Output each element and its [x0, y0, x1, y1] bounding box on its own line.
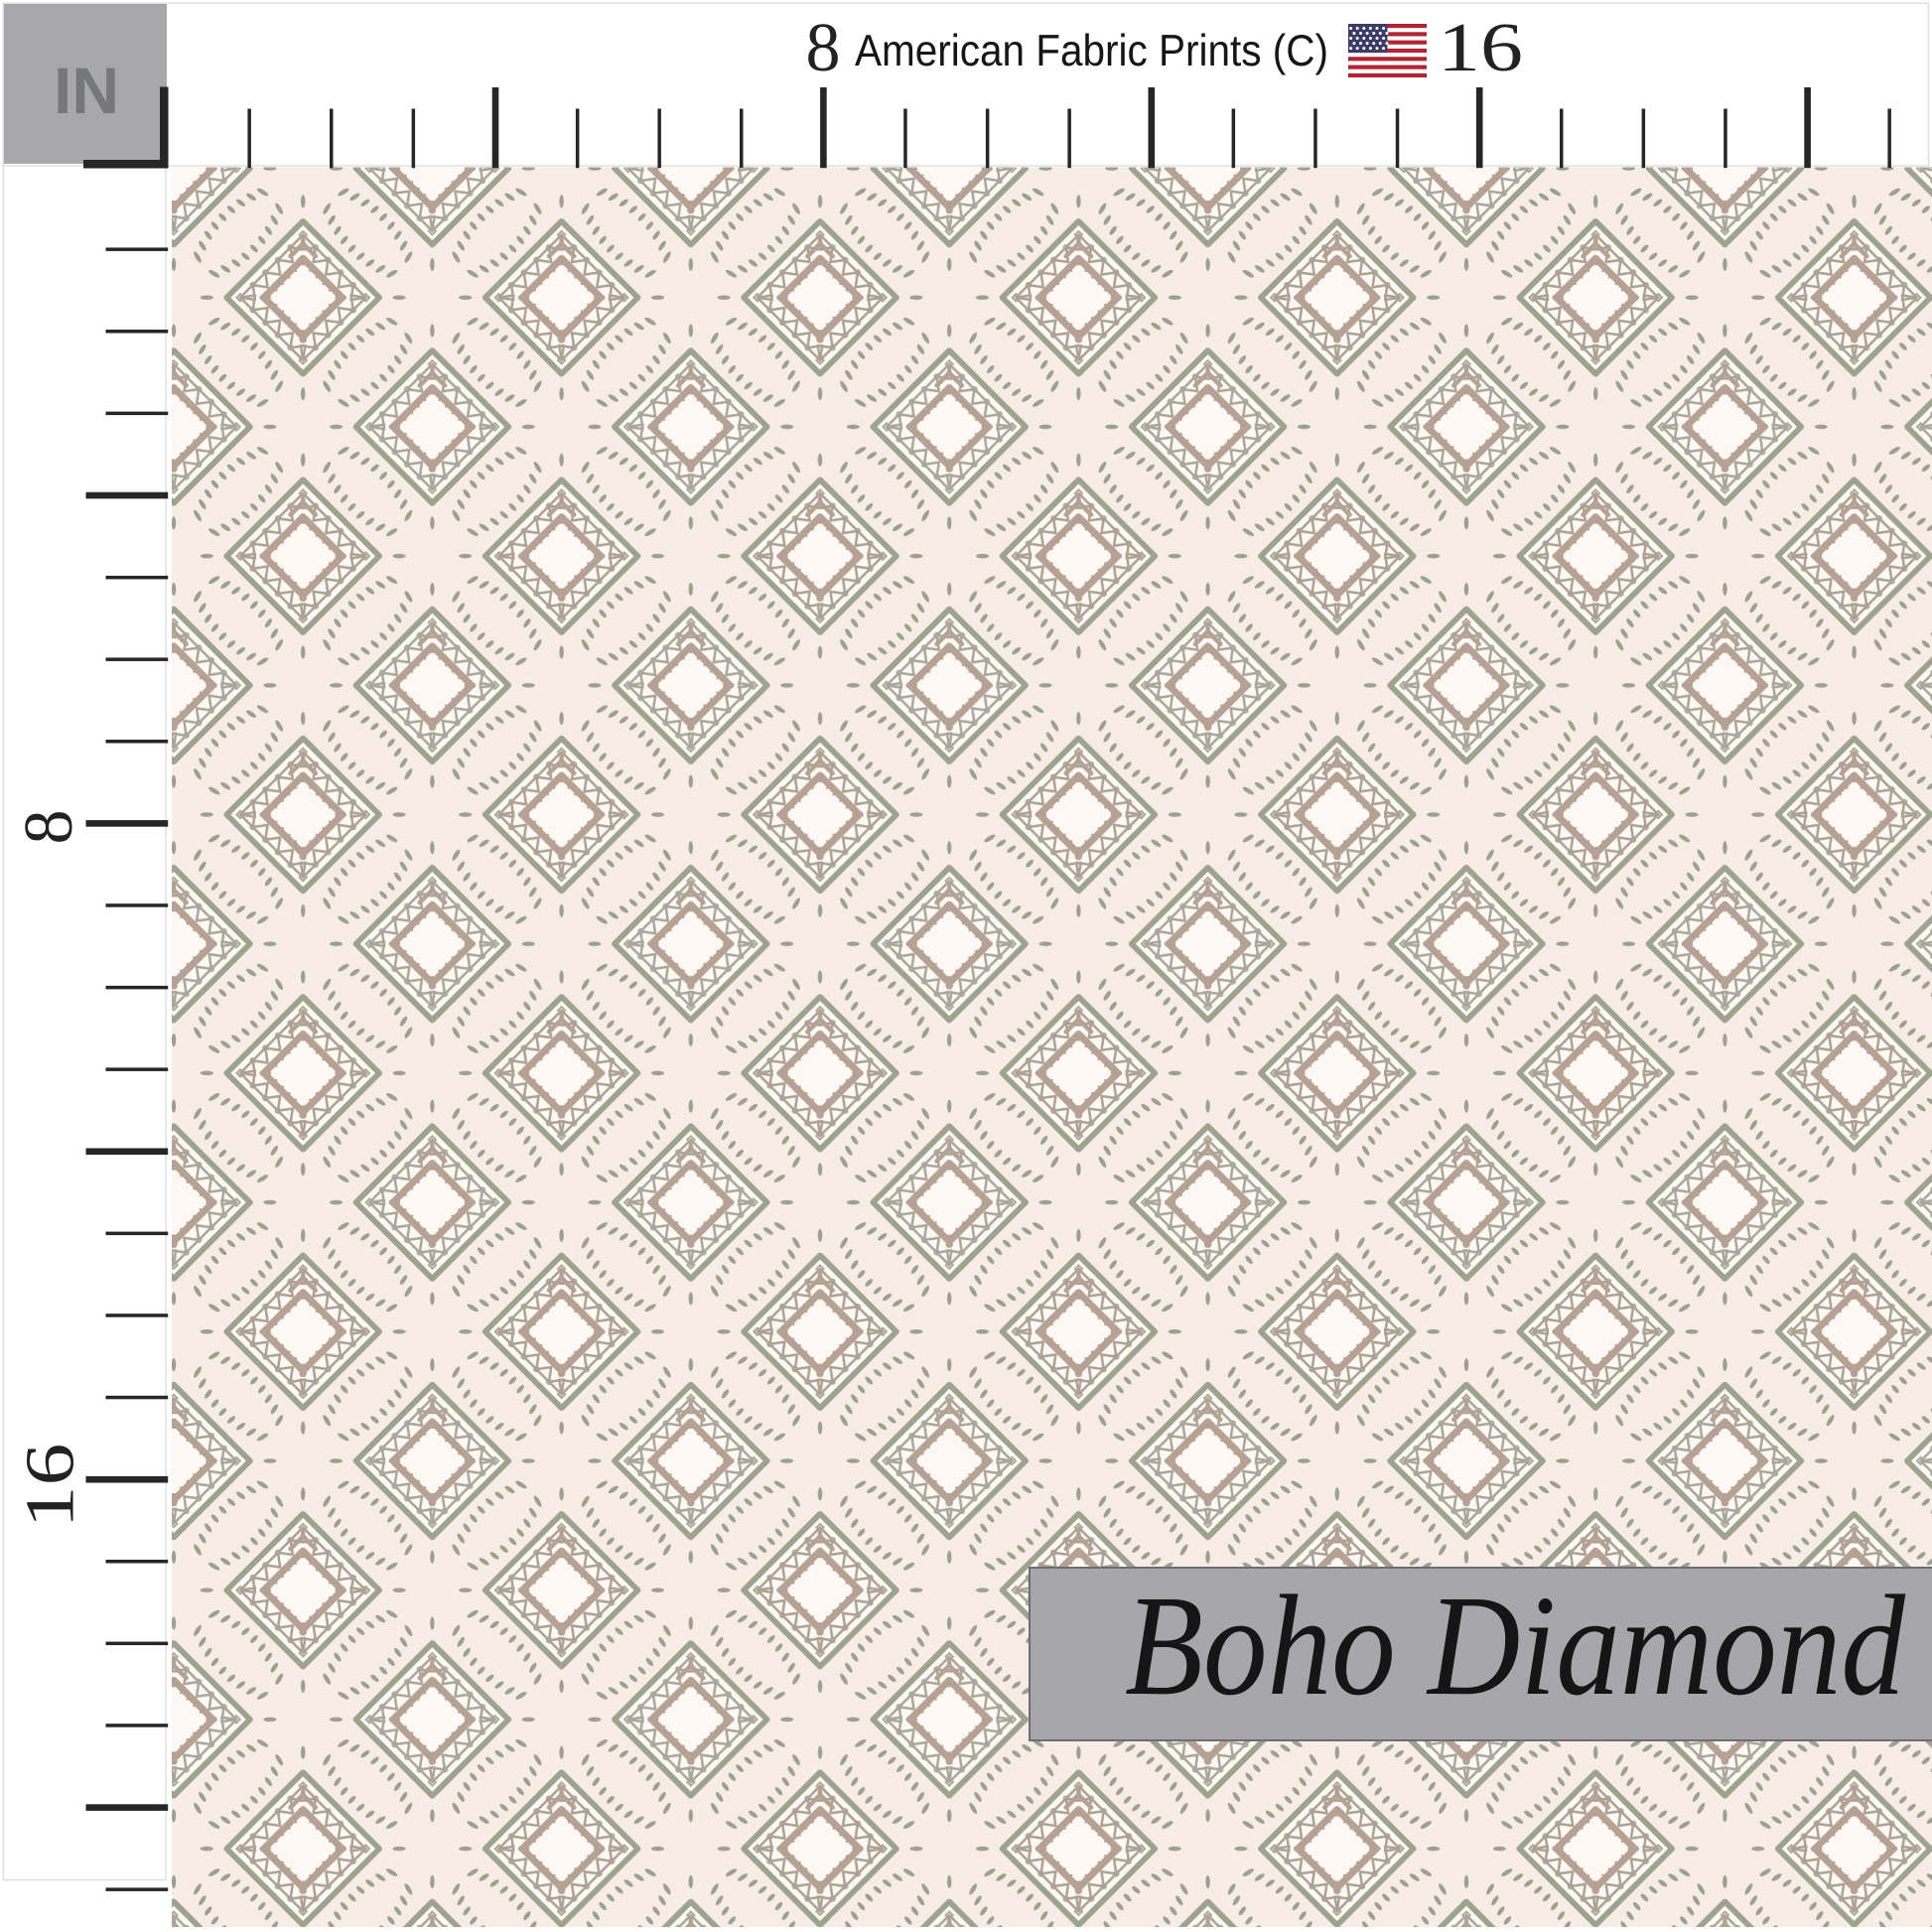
svg-text:8: 8 [806, 10, 841, 86]
svg-text:American Fabric Prints (C): American Fabric Prints (C) [855, 27, 1328, 75]
svg-text:16: 16 [13, 1444, 89, 1529]
svg-text:Boho Diamond: Boho Diamond [1125, 1567, 1905, 1725]
svg-text:8: 8 [11, 810, 87, 845]
svg-text:16: 16 [1438, 10, 1523, 86]
svg-text:IN: IN [54, 54, 119, 127]
